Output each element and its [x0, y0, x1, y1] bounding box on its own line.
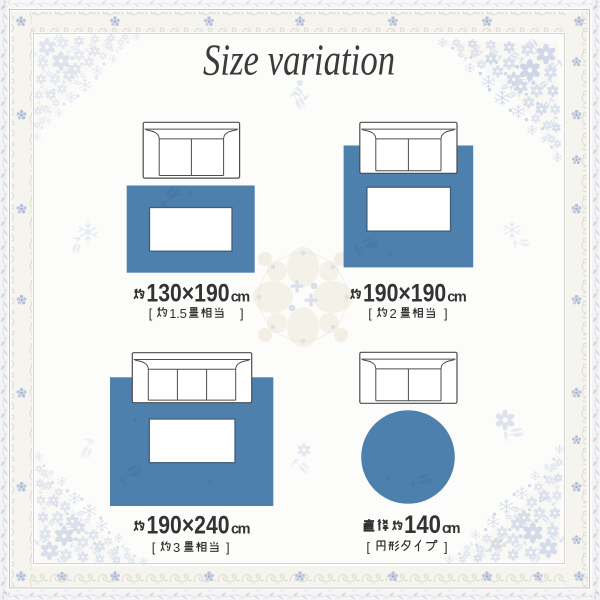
- svg-text:190×190: 190×190: [363, 279, 446, 307]
- svg-text:[: [: [366, 539, 370, 554]
- svg-text:190×240: 190×240: [147, 511, 230, 539]
- svg-text:cm: cm: [442, 521, 461, 537]
- svg-text:140: 140: [404, 511, 441, 539]
- svg-text:cm: cm: [447, 289, 467, 305]
- svg-text:[: [: [152, 540, 156, 555]
- svg-text:]: ]: [226, 540, 230, 555]
- svg-text:]: ]: [240, 306, 244, 321]
- svg-text:cm: cm: [231, 521, 251, 537]
- svg-text:3: 3: [173, 540, 180, 555]
- svg-text:1.5: 1.5: [169, 306, 187, 321]
- svg-text:Size variation: Size variation: [203, 36, 395, 85]
- svg-text:[: [: [149, 306, 153, 321]
- svg-text:cm: cm: [231, 289, 251, 305]
- svg-text:[: [: [368, 306, 372, 321]
- svg-text:2: 2: [390, 306, 397, 321]
- svg-text:130×190: 130×190: [146, 279, 229, 307]
- svg-text:]: ]: [444, 306, 448, 321]
- svg-text:]: ]: [444, 539, 448, 554]
